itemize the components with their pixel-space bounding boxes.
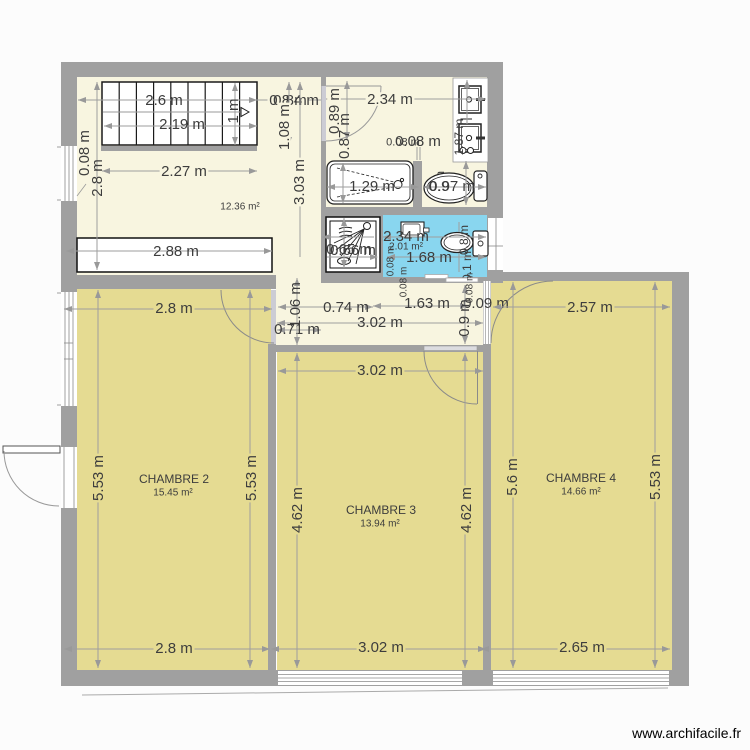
svg-text:2.65 m: 2.65 m: [559, 639, 605, 656]
svg-text:3.02 m: 3.02 m: [357, 362, 403, 379]
svg-text:1.08 m: 1.08 m: [276, 104, 293, 150]
svg-text:1.29 m: 1.29 m: [349, 178, 395, 195]
svg-text:12.36 m²: 12.36 m²: [220, 201, 260, 212]
svg-text:0.66 m: 0.66 m: [330, 242, 376, 259]
svg-text:1.87 m: 1.87 m: [452, 119, 466, 156]
svg-text:1 m: 1 m: [225, 98, 242, 123]
svg-text:4.62 m: 4.62 m: [289, 487, 306, 533]
svg-text:13.94 m²: 13.94 m²: [360, 518, 400, 529]
svg-text:1.68 m: 1.68 m: [406, 249, 452, 266]
svg-text:2.34 m: 2.34 m: [367, 91, 413, 108]
svg-text:www.archifacile.fr: www.archifacile.fr: [631, 725, 741, 741]
svg-text:0.9 m: 0.9 m: [456, 299, 473, 337]
svg-text:0.08 m: 0.08 m: [398, 267, 409, 298]
svg-text:CHAMBRE 4: CHAMBRE 4: [546, 471, 616, 485]
svg-text:2.6 m: 2.6 m: [145, 92, 183, 109]
svg-text:0.08 m: 0.08 m: [385, 246, 396, 277]
svg-text:0.08 m: 0.08 m: [464, 273, 475, 304]
svg-text:5.53 m: 5.53 m: [243, 455, 260, 501]
svg-text:3.03 m: 3.03 m: [291, 159, 308, 205]
svg-text:2.8 m: 2.8 m: [89, 159, 106, 197]
svg-text:2.57 m: 2.57 m: [567, 299, 613, 316]
svg-text:3.02 m: 3.02 m: [358, 639, 404, 656]
svg-text:5.53 m: 5.53 m: [647, 454, 664, 500]
svg-text:2.19 m: 2.19 m: [159, 116, 205, 133]
svg-text:5.53 m: 5.53 m: [90, 455, 107, 501]
svg-text:14.66 m²: 14.66 m²: [561, 486, 601, 497]
svg-text:0.9: 0.9: [429, 178, 450, 195]
svg-text:2.88 m: 2.88 m: [153, 243, 199, 260]
svg-text:CHAMBRE 2: CHAMBRE 2: [139, 472, 209, 486]
svg-text:1.06 m: 1.06 m: [287, 282, 304, 328]
svg-text:2.8 m: 2.8 m: [155, 300, 193, 317]
svg-text:0.8 m: 0.8 m: [457, 225, 471, 255]
svg-text:2.27 m: 2.27 m: [161, 163, 207, 180]
svg-text:CHAMBRE 3: CHAMBRE 3: [346, 503, 416, 517]
svg-text:0.08 m: 0.08 m: [386, 137, 420, 149]
svg-text:4.62 m: 4.62 m: [458, 487, 475, 533]
svg-text:1.63 m: 1.63 m: [404, 295, 450, 312]
svg-text:0.87 m: 0.87 m: [336, 113, 353, 159]
svg-text:3.02 m: 3.02 m: [357, 314, 403, 331]
svg-text:15.45 m²: 15.45 m²: [153, 487, 193, 498]
svg-text:2.8 m: 2.8 m: [155, 640, 193, 657]
svg-text:5.6 m: 5.6 m: [504, 458, 521, 496]
